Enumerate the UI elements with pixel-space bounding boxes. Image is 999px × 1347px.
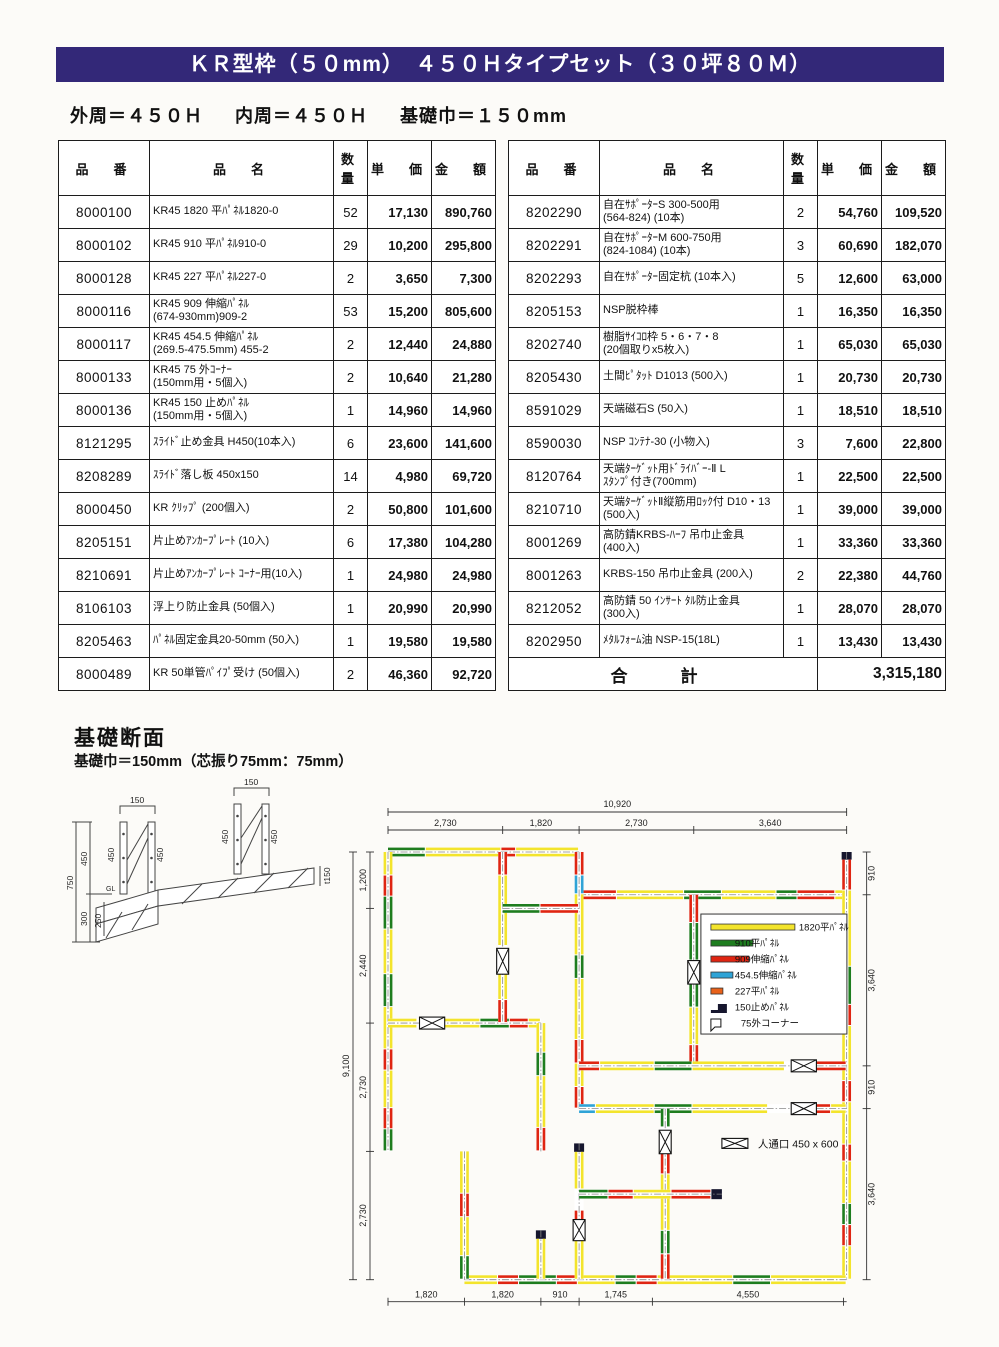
passage-note-label: 人通口 450 x 600 <box>758 1138 839 1150</box>
item-name: 自在ｻﾎﾟｰﾀｰ固定杭 (10本入) <box>600 262 784 295</box>
dim-label: 2,730 <box>358 1076 368 1099</box>
panel-seg <box>579 1104 595 1107</box>
dim-label: 3,640 <box>759 818 782 828</box>
legend-label: 910平ﾊﾟﾈﾙ <box>735 939 780 950</box>
panel-seg <box>390 1129 393 1150</box>
item-amount: 63,000 <box>882 262 946 295</box>
item-code: 8000136 <box>59 394 150 427</box>
panel-seg <box>543 1239 546 1279</box>
total-amount: 3,315,180 <box>818 658 946 691</box>
dim-450-a: 450 <box>106 848 116 862</box>
item-qty: 52 <box>334 196 368 229</box>
panel-seg <box>689 923 692 960</box>
item-amount: 20,990 <box>432 592 496 625</box>
table-row: 8202740樹脂ｻｲｺﾛ枠 5・6・7・8 (20個取りx5枚入)165,03… <box>509 328 946 361</box>
panel-seg <box>848 1145 851 1161</box>
item-unit-price: 7,600 <box>818 427 882 460</box>
panel-seg <box>529 1019 540 1022</box>
item-name: KR45 454.5 伸縮ﾊﾟﾈﾙ (269.5-475.5mm) 455-2 <box>150 328 334 361</box>
panel-seg <box>842 1204 845 1224</box>
table-row: 8000102KR45 910 平ﾊﾟﾈﾙ910-02910,200295,80… <box>59 229 496 262</box>
item-qty: 1 <box>784 460 818 493</box>
table-row: 8591029天端磁石S (50入)118,51018,510 <box>509 394 946 427</box>
item-qty: 2 <box>334 361 368 394</box>
panel-seg <box>543 1076 546 1127</box>
item-unit-price: 20,990 <box>368 592 432 625</box>
panel-seg <box>696 923 699 960</box>
panel-seg <box>848 891 851 966</box>
item-name: ｽﾗｲﾄﾞ落し板 450x150 <box>150 460 334 493</box>
item-name: 片止めｱﾝｶｰﾌﾟﾚｰﾄ ｺｰﾅｰ用(10入) <box>150 559 334 592</box>
title-banner: ＫＲ型枠（５０mm） ４５０Ｈタイプセット（３０坪８０Ｍ） <box>56 47 944 82</box>
scanned-quotation-page: ＫＲ型枠（５０mm） ４５０Ｈタイプセット（３０坪８０Ｍ） 外周＝４５０Ｈ 内周… <box>0 0 999 1347</box>
dim-150-left: 150 <box>130 795 144 805</box>
item-amount: 22,500 <box>882 460 946 493</box>
dim-label: 2,730 <box>625 818 648 828</box>
dim-150-right: 150 <box>244 777 258 787</box>
item-amount: 21,280 <box>432 361 496 394</box>
panel-seg <box>388 1019 416 1022</box>
item-name: NSP脱枠棒 <box>600 295 784 328</box>
item-code: 8000100 <box>59 196 150 229</box>
item-amount: 28,070 <box>882 592 946 625</box>
panel-seg <box>504 1000 507 1022</box>
panel-seg <box>384 1049 387 1069</box>
dim-label: 1,200 <box>358 869 368 892</box>
item-amount: 19,580 <box>432 625 496 658</box>
item-code: 8205151 <box>59 526 150 559</box>
item-code: 8210691 <box>59 559 150 592</box>
item-qty: 2 <box>784 559 818 592</box>
panel-seg <box>831 1110 846 1113</box>
dim-label: 1,820 <box>415 1290 438 1300</box>
item-name: KR45 910 平ﾊﾟﾈﾙ910-0 <box>150 229 334 262</box>
item-code: 8590030 <box>509 427 600 460</box>
column-header: 金 額 <box>432 141 496 196</box>
panel-seg <box>616 1275 636 1278</box>
item-code: 8000133 <box>59 361 150 394</box>
panel-seg <box>460 1194 463 1217</box>
dim-label: 2,730 <box>358 1204 368 1227</box>
item-unit-price: 22,380 <box>818 559 882 592</box>
item-code: 8205153 <box>509 295 600 328</box>
item-name: 天端ﾀｰｹﾞｯﾄ用ﾄﾞﾗｲﾊﾞｰ-Ⅱ L ｽﾀﾝﾌﾟ付き(700mm) <box>600 460 784 493</box>
panel-seg <box>696 1008 699 1045</box>
panel-seg <box>575 1239 578 1279</box>
panel-seg <box>536 1128 539 1151</box>
item-unit-price: 12,600 <box>818 262 882 295</box>
header-row: 品 番品 名数量単 価金 額 <box>59 141 496 196</box>
item-qty: 1 <box>334 394 368 427</box>
item-unit-price: 13,430 <box>818 625 882 658</box>
panel-seg <box>848 1005 851 1025</box>
panel-seg <box>384 974 387 1006</box>
item-qty: 1 <box>784 493 818 526</box>
panel-seg <box>771 1275 846 1278</box>
item-amount: 295,800 <box>432 229 496 262</box>
table-row: 8000136KR45 150 止めﾊﾟﾈﾙ (150mm用・5個入)114,9… <box>59 394 496 427</box>
panel-seg <box>464 1275 497 1278</box>
panel-seg <box>557 1282 577 1285</box>
item-qty: 1 <box>784 592 818 625</box>
panel-seg <box>581 852 584 875</box>
dim-450-left: 450 <box>79 852 89 866</box>
panel-seg <box>658 1282 733 1285</box>
item-amount: 14,960 <box>432 394 496 427</box>
item-code: 8000117 <box>59 328 150 361</box>
item-qty: 53 <box>334 295 368 328</box>
item-qty: 14 <box>334 460 368 493</box>
item-amount: 13,430 <box>882 625 946 658</box>
item-name: KR45 909 伸縮ﾊﾟﾈﾙ (674-930mm)909-2 <box>150 295 334 328</box>
panel-seg <box>581 1040 584 1063</box>
panel-seg <box>777 890 797 893</box>
panel-seg <box>609 1196 633 1199</box>
panel-seg <box>667 1151 670 1174</box>
item-unit-price: 24,980 <box>368 559 432 592</box>
panel-seg <box>498 1000 501 1022</box>
panel-seg <box>842 1162 845 1203</box>
panel-seg <box>600 1061 654 1064</box>
panel-seg <box>581 955 584 978</box>
panel-seg <box>798 890 835 893</box>
item-amount: 182,070 <box>882 229 946 262</box>
panel-seg <box>842 1081 845 1101</box>
panel-seg <box>390 974 393 1006</box>
panel-seg <box>510 1025 528 1028</box>
panel-seg <box>443 1019 480 1022</box>
item-qty: 1 <box>784 295 818 328</box>
panel-seg <box>390 1049 393 1069</box>
panel-seg <box>384 1071 387 1108</box>
legend-label: 227平ﾊﾟﾈﾙ <box>735 987 780 998</box>
panel-seg <box>733 1282 770 1285</box>
item-qty: 1 <box>334 559 368 592</box>
panel-seg <box>536 1053 539 1076</box>
dim-label: 10,920 <box>604 799 632 809</box>
panel-seg <box>384 1007 387 1048</box>
item-name: KR45 75 外ｺｰﾅｰ (150mm用・5個入) <box>150 361 334 394</box>
panel-seg <box>543 1023 546 1052</box>
item-unit-price: 33,360 <box>818 526 882 559</box>
legend-color-bar <box>711 988 723 994</box>
panel-seg <box>543 1128 546 1151</box>
item-name: KR 50単管ﾊﾟｲﾌﾟ受け (50個入) <box>150 658 334 691</box>
panel-seg <box>667 1254 670 1278</box>
panel-seg <box>384 1129 387 1150</box>
item-unit-price: 17,130 <box>368 196 432 229</box>
panel-seg <box>655 1068 692 1071</box>
dim-300: 300 <box>79 912 89 926</box>
dim-750: 750 <box>65 876 75 890</box>
dim-label: 1,820 <box>491 1290 514 1300</box>
table-row: 8210710天端ﾀｰｹﾞｯﾄⅡ縦筋用ﾛｯｸ付 D10・13 (500入)139… <box>509 493 946 526</box>
item-unit-price: 50,800 <box>368 493 432 526</box>
spec-line: 外周＝４５０Ｈ 内周＝４５０Ｈ 基礎巾＝１５０mm <box>70 102 593 128</box>
dim-450-d: 450 <box>269 830 279 844</box>
table-row: 8202291自在ｻﾎﾟｰﾀｰM 600-750用 (824-1084) (10… <box>509 229 946 262</box>
item-code: 8202950 <box>509 625 600 658</box>
panel-seg <box>503 910 540 913</box>
table-row: 8000450KR ｸﾘｯﾌﾟ (200個入)250,800101,600 <box>59 493 496 526</box>
section-subtitle: 基礎巾＝150mm（芯振り75mm：75mm） <box>74 750 353 771</box>
legend-label: 150止めﾊﾟﾈﾙ <box>735 1002 789 1014</box>
table-row: 8210691片止めｱﾝｶｰﾌﾟﾚｰﾄ ｺｰﾅｰ用(10入)124,98024,… <box>59 559 496 592</box>
panel-seg <box>777 897 797 900</box>
item-amount: 109,520 <box>882 196 946 229</box>
item-unit-price: 15,200 <box>368 295 432 328</box>
panel-seg <box>655 1104 692 1107</box>
item-amount: 24,980 <box>432 559 496 592</box>
panel-seg <box>504 852 507 875</box>
panel-seg <box>609 1190 633 1193</box>
item-code: 8208289 <box>59 460 150 493</box>
item-unit-price: 12,440 <box>368 328 432 361</box>
panel-seg <box>581 1152 584 1189</box>
panel-seg <box>575 979 578 1039</box>
panel-seg <box>516 854 578 857</box>
panel-seg <box>637 1282 657 1285</box>
item-name: KR45 150 止めﾊﾟﾈﾙ (150mm用・5個入) <box>150 394 334 427</box>
item-name: KR ｸﾘｯﾌﾟ (200個入) <box>150 493 334 526</box>
item-amount: 44,760 <box>882 559 946 592</box>
item-amount: 16,350 <box>882 295 946 328</box>
panel-seg <box>466 1194 469 1217</box>
panel-seg <box>617 890 683 893</box>
legend-label: 75外コーナー <box>741 1018 799 1030</box>
panel-seg <box>466 1217 469 1255</box>
panel-seg <box>581 876 584 894</box>
panel-seg <box>575 955 578 978</box>
panel-seg <box>693 1061 784 1064</box>
panel-seg <box>519 1282 556 1285</box>
panel-seg <box>848 1162 851 1203</box>
panel-seg <box>696 895 699 922</box>
panel-seg <box>848 1102 851 1143</box>
panel-seg <box>848 1246 851 1278</box>
dim-label: 1,820 <box>530 818 553 828</box>
item-amount: 20,730 <box>882 361 946 394</box>
table-row: 8202950ﾒﾀﾙﾌｫｰﾑ油 NSP-15(18L)113,43013,430 <box>509 625 946 658</box>
item-amount: 805,600 <box>432 295 496 328</box>
item-amount: 69,720 <box>432 460 496 493</box>
panel-seg <box>722 890 776 893</box>
item-unit-price: 28,070 <box>818 592 882 625</box>
dim-label: 1,745 <box>604 1290 627 1300</box>
panel-seg <box>426 854 501 857</box>
item-unit-price: 3,650 <box>368 262 432 295</box>
item-name: NSP ｺﾝﾃﾅ-30 (小物入) <box>600 427 784 460</box>
panel-seg <box>575 1087 578 1108</box>
panel-seg <box>384 852 387 875</box>
spec-width: 基礎巾＝１５０mm <box>400 106 567 126</box>
dim-450-c: 450 <box>220 830 230 844</box>
dim-250: 250 <box>93 914 103 928</box>
panel-seg <box>460 1151 463 1192</box>
item-code: 8202293 <box>509 262 600 295</box>
column-header: 数量 <box>334 141 368 196</box>
panel-seg <box>616 1282 636 1285</box>
panel-seg <box>634 1190 671 1193</box>
panel-seg <box>557 1275 577 1278</box>
item-code: 8000116 <box>59 295 150 328</box>
item-amount: 92,720 <box>432 658 496 691</box>
table-row: 8205463ﾊﾟﾈﾙ固定金具20-50mm (50入)119,58019,58… <box>59 625 496 658</box>
item-qty: 2 <box>334 328 368 361</box>
item-code: 8001269 <box>509 526 600 559</box>
panel-seg <box>661 1254 664 1278</box>
item-name: 高防錆 50 ｲﾝｻｰﾄ ﾀﾙ防止金具 (300入) <box>600 592 784 625</box>
legend-label: 909伸縮ﾊﾟﾈﾙ <box>735 954 789 966</box>
item-unit-price: 23,600 <box>368 427 432 460</box>
item-qty: 1 <box>784 328 818 361</box>
item-amount: 7,300 <box>432 262 496 295</box>
panel-seg <box>693 1110 768 1113</box>
panel-seg <box>540 904 578 907</box>
table-row: 8000100KR45 1820 平ﾊﾟﾈﾙ1820-05217,130890,… <box>59 196 496 229</box>
panel-seg <box>672 1190 711 1193</box>
panel-seg <box>390 897 393 929</box>
panel-seg <box>498 1282 518 1285</box>
panel-seg <box>798 897 835 900</box>
item-code: 8121295 <box>59 427 150 460</box>
panel-seg <box>579 1110 595 1113</box>
price-table-right: 品 番品 名数量単 価金 額8202290自在ｻﾎﾟｰﾀｰS 300-500用 … <box>508 140 946 691</box>
table-row: 8001269高防錆KRBS-ﾊｰﾌ 吊巾止金具 (400入)133,36033… <box>509 526 946 559</box>
panel-seg <box>575 852 578 875</box>
panel-seg <box>693 1068 784 1071</box>
panel-seg <box>848 860 851 890</box>
column-header: 品 番 <box>59 141 150 196</box>
column-header: 品 名 <box>150 141 334 196</box>
section-title: 基礎断面 <box>74 722 166 752</box>
item-code: 8000102 <box>59 229 150 262</box>
panel-seg <box>498 972 501 999</box>
panel-seg <box>634 1196 671 1199</box>
panel-seg <box>388 1025 416 1028</box>
panel-seg <box>384 876 387 896</box>
dim-450-b: 450 <box>155 848 165 862</box>
item-qty: 5 <box>784 262 818 295</box>
dim-label: 910 <box>867 1080 877 1095</box>
table-row: 8001263KRBS-150 吊巾止金具 (200入)222,38044,76… <box>509 559 946 592</box>
item-unit-price: 39,000 <box>818 493 882 526</box>
item-amount: 24,880 <box>432 328 496 361</box>
panel-seg <box>543 1053 546 1076</box>
panel-seg <box>848 967 851 1004</box>
panel-seg <box>460 1217 463 1255</box>
foundation-plan: 1820平ﾊﾟﾈﾙ910平ﾊﾟﾈﾙ909伸縮ﾊﾟﾈﾙ454.5伸縮ﾊﾟﾈﾙ227… <box>337 788 967 1346</box>
item-name: 自在ｻﾎﾟｰﾀｰS 300-500用 (564-824) (10本) <box>600 196 784 229</box>
table-row: 8120764天端ﾀｰｹﾞｯﾄ用ﾄﾞﾗｲﾊﾞｰ-Ⅱ L ｽﾀﾝﾌﾟ付き(700m… <box>509 460 946 493</box>
panel-seg <box>596 1104 654 1107</box>
panel-seg <box>390 876 393 896</box>
item-name: 自在ｻﾎﾟｰﾀｰM 600-750用 (824-1084) (10本) <box>600 229 784 262</box>
table-row: 8106103浮上り防止金具 (50個入)120,99020,990 <box>59 592 496 625</box>
item-unit-price: 4,980 <box>368 460 432 493</box>
panel-seg <box>696 984 699 1007</box>
spec-inner: 内周＝４５０Ｈ <box>235 106 368 126</box>
table-row: 8000128KR45 227 平ﾊﾟﾈﾙ227-023,6507,300 <box>59 262 496 295</box>
item-qty: 1 <box>334 592 368 625</box>
panel-seg <box>667 1231 670 1254</box>
panel-seg <box>575 1064 578 1087</box>
panel-seg <box>596 1110 654 1113</box>
item-name: KR45 227 平ﾊﾟﾈﾙ227-0 <box>150 262 334 295</box>
item-qty: 2 <box>334 493 368 526</box>
item-qty: 29 <box>334 229 368 262</box>
panel-seg <box>384 897 387 929</box>
item-code: 8000450 <box>59 493 150 526</box>
table-row: 8205430土間ﾋﾟﾀｯﾄ D1013 (500入)120,73020,730 <box>509 361 946 394</box>
panel-seg <box>504 972 507 999</box>
panel-seg <box>498 1275 518 1278</box>
legend-color-bar <box>711 924 795 930</box>
legend-color-bar <box>711 972 733 978</box>
column-header: 単 価 <box>368 141 432 196</box>
item-unit-price: 65,030 <box>818 328 882 361</box>
panel-seg <box>661 1109 664 1127</box>
panel-seg <box>842 1246 845 1278</box>
panel-seg <box>536 1023 539 1052</box>
dim-label: 4,550 <box>737 1290 760 1300</box>
item-name: 高防錆KRBS-ﾊｰﾌ 吊巾止金具 (400入) <box>600 526 784 559</box>
table-row: 8000116KR45 909 伸縮ﾊﾟﾈﾙ (674-930mm)909-25… <box>59 295 496 328</box>
item-unit-price: 10,200 <box>368 229 432 262</box>
item-amount: 104,280 <box>432 526 496 559</box>
item-qty: 1 <box>784 394 818 427</box>
table-row: 8121295ｽﾗｲﾄﾞ止め金具 H450(10本入)623,600141,60… <box>59 427 496 460</box>
panel-seg <box>384 1108 387 1128</box>
item-amount: 890,760 <box>432 196 496 229</box>
item-name: 浮上り防止金具 (50個入) <box>150 592 334 625</box>
dim-label: 2,730 <box>434 818 457 828</box>
item-unit-price: 54,760 <box>818 196 882 229</box>
panel-seg <box>388 848 425 851</box>
item-qty: 3 <box>784 229 818 262</box>
panel-seg <box>655 1110 692 1113</box>
panel-seg <box>575 1152 578 1189</box>
panel-seg <box>848 1204 851 1224</box>
panel-seg <box>689 895 692 922</box>
item-amount: 101,600 <box>432 493 496 526</box>
panel-seg <box>722 897 776 900</box>
panel-seg <box>579 897 616 900</box>
panel-seg <box>579 890 616 893</box>
panel-seg <box>480 1025 508 1028</box>
panel-seg <box>501 848 515 851</box>
legend-label: 1820平ﾊﾟﾈﾙ <box>799 923 849 934</box>
panel-seg <box>388 854 425 857</box>
table-row: 8208289ｽﾗｲﾄﾞ落し板 450x150144,98069,720 <box>59 460 496 493</box>
panel-seg <box>661 1151 664 1174</box>
panel-seg <box>536 1239 539 1279</box>
item-name: 天端ﾀｰｹﾞｯﾄⅡ縦筋用ﾛｯｸ付 D10・13 (500入) <box>600 493 784 526</box>
item-code: 8001263 <box>509 559 600 592</box>
panel-seg <box>390 1071 393 1108</box>
item-name: 土間ﾋﾟﾀｯﾄ D1013 (500入) <box>600 361 784 394</box>
panel-seg <box>848 1026 851 1080</box>
item-code: 8205430 <box>509 361 600 394</box>
table-row: 8205151片止めｱﾝｶｰﾌﾟﾚｰﾄ (10入)617,380104,280 <box>59 526 496 559</box>
item-qty: 1 <box>784 625 818 658</box>
panel-seg <box>661 1174 664 1229</box>
item-code: 8212052 <box>509 592 600 625</box>
item-code: 8120764 <box>509 460 600 493</box>
item-code: 8000489 <box>59 658 150 691</box>
item-qty: 1 <box>784 526 818 559</box>
panel-seg <box>842 1225 845 1245</box>
